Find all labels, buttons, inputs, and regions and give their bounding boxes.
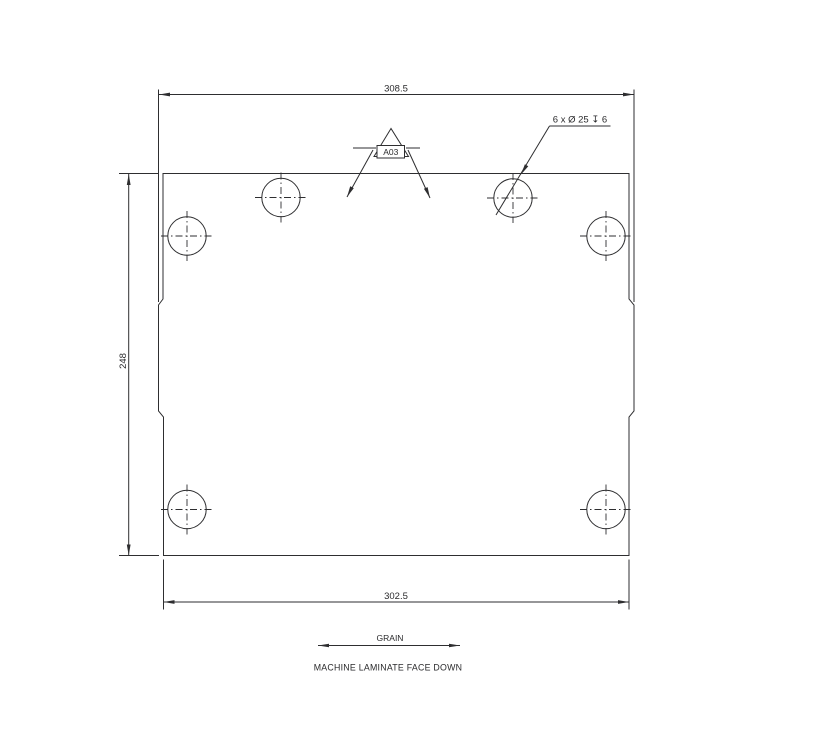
dimension-value-left-height: 248	[118, 353, 129, 369]
hole-lower-left	[161, 485, 213, 535]
hole-callout-text: 6 x Ø 25 ↧ 6	[553, 115, 607, 126]
dimension-arrow-left	[159, 93, 170, 97]
drawing-sheet: 308.5 248 302.5 6 x Ø 25 ↧ 6	[0, 0, 840, 750]
technical-drawing-canvas: 308.5 248 302.5 6 x Ø 25 ↧ 6	[0, 0, 840, 750]
hole-lower-right	[580, 485, 632, 535]
hole-callout: 6 x Ø 25 ↧ 6	[496, 115, 611, 216]
dimension-value-top-width: 308.5	[384, 84, 408, 95]
callout-leader-arrow	[521, 164, 528, 174]
hole-group	[161, 173, 632, 535]
grain-arrow-right	[449, 644, 460, 648]
hole-top-left-of-center	[255, 173, 307, 223]
hole-upper-left	[161, 211, 213, 261]
dimension-arrow-top	[127, 174, 131, 185]
tag-label-text: A03	[383, 147, 398, 157]
tag-leader-arrow-left	[347, 186, 354, 197]
dimension-arrow-bottom	[127, 545, 131, 556]
dimension-arrow-right	[623, 93, 634, 97]
dimension-bottom-width: 302.5	[164, 560, 630, 610]
tag-leader-arrow-right	[424, 187, 430, 198]
grain-label: GRAIN	[377, 633, 404, 643]
hole-upper-right	[580, 211, 632, 261]
edge-band-tag: A03	[347, 129, 430, 199]
dimension-arrow-left	[164, 600, 175, 604]
dimension-arrow-right	[618, 600, 629, 604]
grain-arrow-left	[318, 644, 329, 648]
plate-outline	[159, 174, 635, 556]
process-note: MACHINE LAMINATE FACE DOWN	[314, 663, 463, 673]
grain-indicator: GRAIN	[318, 633, 460, 647]
dimension-value-bottom-width: 302.5	[384, 591, 408, 602]
hole-top-right-of-center	[487, 173, 539, 223]
dimension-left-height: 248	[118, 174, 159, 556]
